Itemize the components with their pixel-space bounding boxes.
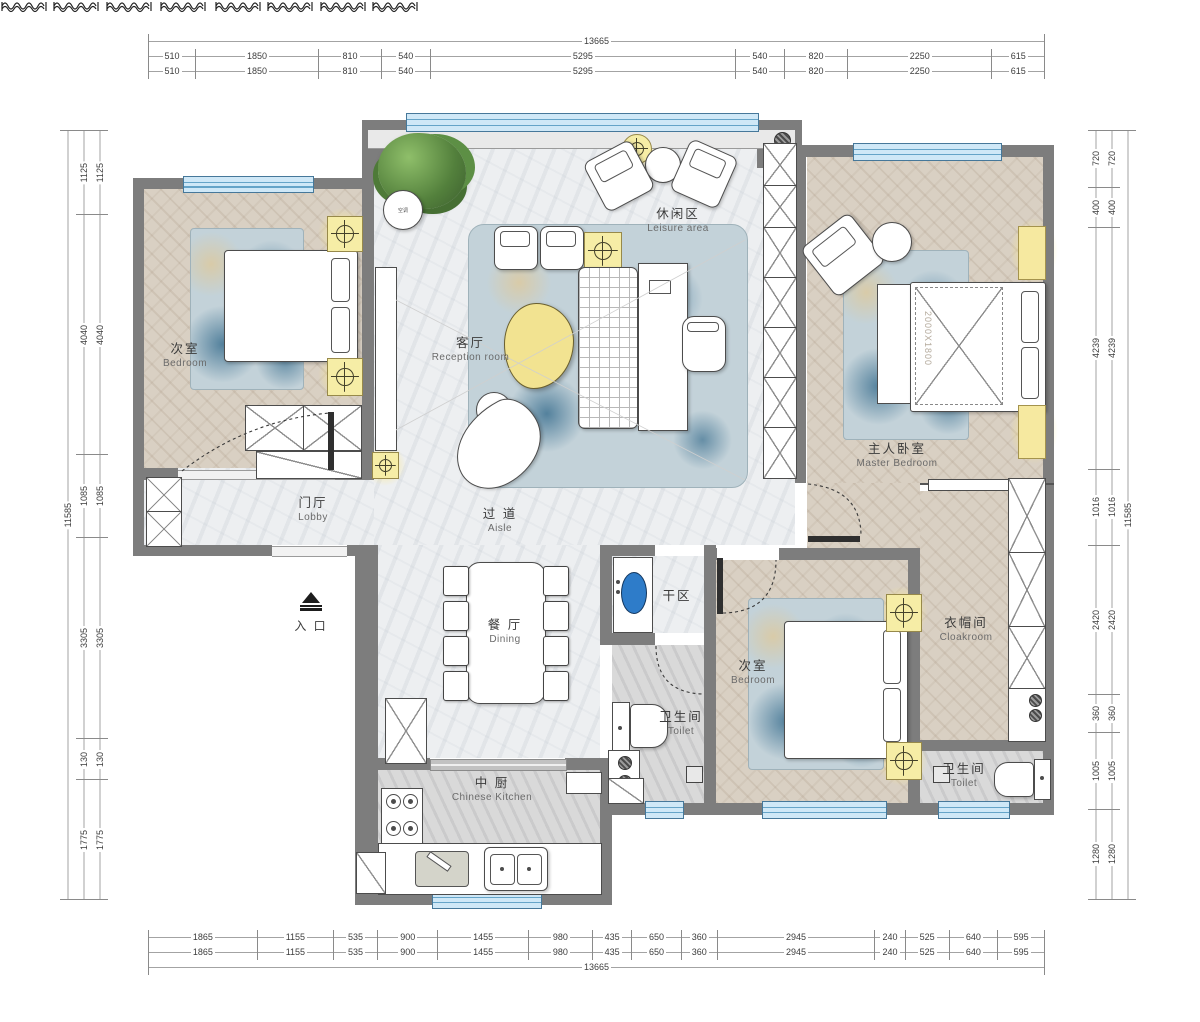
dim-seg: 240 xyxy=(874,945,905,960)
door-swing-overlay xyxy=(0,0,1200,1022)
dim-seg: 5295 xyxy=(430,64,735,79)
room-label-bedroom1: 次室 Bedroom xyxy=(140,338,230,369)
dim-seg: 510 xyxy=(148,64,195,79)
dim-seg: 1455 xyxy=(437,945,527,960)
dim-total-col: 11585 xyxy=(1120,130,1136,900)
dim-seg: 1280 xyxy=(1104,809,1120,900)
dim-seg: 640 xyxy=(949,930,998,945)
dim-seg: 1850 xyxy=(195,49,318,64)
dim-seg: 400 xyxy=(1088,187,1104,227)
dim-seg: 130 xyxy=(92,738,108,779)
dim-seg: 1155 xyxy=(257,930,333,945)
dim-seg: 615 xyxy=(991,49,1045,64)
dim-chain-right: 720 400 4239 1016 2420 360 1005 1280 720… xyxy=(1088,130,1136,900)
dim-chain-top: 13665 510 1850 810 540 5295 540 820 2250… xyxy=(148,34,1045,79)
dim-seg: 435 xyxy=(592,945,632,960)
dim-col: 1125 4040 1085 3305 130 1775 xyxy=(92,130,108,900)
dim-seg: 810 xyxy=(318,64,381,79)
dim-seg: 650 xyxy=(631,945,680,960)
dim-seg: 13665 xyxy=(148,960,1045,975)
dim-seg: 2945 xyxy=(717,930,874,945)
dim-seg: 4040 xyxy=(76,214,92,454)
dim-seg: 400 xyxy=(1104,187,1120,227)
room-label-aisle: 过 道 Aisle xyxy=(460,503,540,534)
dim-seg: 640 xyxy=(949,945,998,960)
dim-col: 720 400 4239 1016 2420 360 1005 1280 xyxy=(1088,130,1104,900)
dim-seg: 11585 xyxy=(60,130,76,900)
dim-seg: 810 xyxy=(318,49,381,64)
dim-seg: 595 xyxy=(997,945,1045,960)
dim-seg: 720 xyxy=(1104,130,1120,187)
room-label-toilet-mid: 卫生间 Toilet xyxy=(651,706,711,737)
room-label-kitchen: 中 厨 Chinese Kitchen xyxy=(422,772,562,803)
room-label-reception: 客厅 Reception room xyxy=(413,332,528,363)
dim-seg: 4239 xyxy=(1088,227,1104,468)
dim-row: 510 1850 810 540 5295 540 820 2250 615 xyxy=(148,49,1045,64)
dim-seg: 595 xyxy=(997,930,1045,945)
room-label-dry-area: 干区 xyxy=(652,585,702,604)
dim-seg: 980 xyxy=(528,930,592,945)
dim-seg: 1016 xyxy=(1088,469,1104,546)
dim-seg: 540 xyxy=(381,64,430,79)
dim-total-row: 13665 xyxy=(148,34,1045,49)
dim-seg: 525 xyxy=(905,945,949,960)
room-label-lobby: 门厅 Lobby xyxy=(273,492,353,523)
dim-seg: 900 xyxy=(377,930,437,945)
dim-total-col: 11585 xyxy=(60,130,76,900)
dim-seg: 130 xyxy=(76,738,92,779)
dim-seg: 1775 xyxy=(92,779,108,900)
room-label-toilet-br: 卫生间 Toilet xyxy=(934,758,994,789)
dim-seg: 435 xyxy=(592,930,632,945)
dim-seg: 820 xyxy=(784,64,847,79)
dim-seg: 4239 xyxy=(1104,227,1120,468)
room-label-entrance: 入 口 xyxy=(285,617,337,634)
dim-seg: 980 xyxy=(528,945,592,960)
room-label-cloakroom: 衣帽间 Cloakroom xyxy=(916,612,1016,643)
dim-seg: 2420 xyxy=(1088,545,1104,694)
dim-seg: 360 xyxy=(681,945,717,960)
dim-row: 1865 1155 535 900 1455 980 435 650 360 2… xyxy=(148,930,1045,945)
dim-seg: 240 xyxy=(874,930,905,945)
dim-seg: 525 xyxy=(905,930,949,945)
dim-seg: 1085 xyxy=(92,454,108,537)
room-label-leisure: 休闲区 Leisure area xyxy=(618,203,738,234)
dim-seg: 2945 xyxy=(717,945,874,960)
dim-seg: 540 xyxy=(735,49,784,64)
dim-seg: 13665 xyxy=(148,34,1045,49)
dim-seg: 4040 xyxy=(92,214,108,454)
dim-seg: 3305 xyxy=(92,537,108,738)
dim-seg: 820 xyxy=(784,49,847,64)
dim-seg: 1865 xyxy=(148,930,257,945)
dim-row: 1865 1155 535 900 1455 980 435 650 360 2… xyxy=(148,945,1045,960)
dim-col: 1125 4040 1085 3305 130 1775 xyxy=(76,130,92,900)
dim-seg: 1005 xyxy=(1088,732,1104,808)
dim-total-row: 13665 xyxy=(148,960,1045,975)
dim-chain-bottom: 1865 1155 535 900 1455 980 435 650 360 2… xyxy=(148,930,1045,975)
dim-seg: 900 xyxy=(377,945,437,960)
room-label-dining: 餐 厅 Dining xyxy=(465,614,545,645)
dim-seg: 360 xyxy=(1104,694,1120,732)
dim-seg: 1280 xyxy=(1088,809,1104,900)
room-label-bedroom2: 次室 Bedroom xyxy=(713,655,793,686)
dim-seg: 360 xyxy=(681,930,717,945)
room-label-master: 主人卧室 Master Bedroom xyxy=(837,438,957,469)
dim-seg: 1455 xyxy=(437,930,527,945)
dim-seg: 3305 xyxy=(76,537,92,738)
dim-seg: 535 xyxy=(333,945,377,960)
dim-seg: 1125 xyxy=(76,130,92,214)
floor-plan-page: 空调 xyxy=(0,0,1200,1022)
dim-seg: 510 xyxy=(148,49,195,64)
dim-seg: 1005 xyxy=(1104,732,1120,808)
dim-seg: 615 xyxy=(991,64,1045,79)
dim-chain-left: 11585 1125 4040 1085 3305 130 1775 1125 … xyxy=(60,130,108,900)
dim-seg: 1016 xyxy=(1104,469,1120,546)
dim-seg: 720 xyxy=(1088,130,1104,187)
dim-seg: 1775 xyxy=(76,779,92,900)
dim-seg: 2250 xyxy=(847,49,991,64)
dim-seg: 1125 xyxy=(92,130,108,214)
dim-seg: 1155 xyxy=(257,945,333,960)
dim-seg: 1865 xyxy=(148,945,257,960)
dim-row: 510 1850 810 540 5295 540 820 2250 615 xyxy=(148,64,1045,79)
dim-seg: 1085 xyxy=(76,454,92,537)
dim-seg: 540 xyxy=(735,64,784,79)
dim-seg: 11585 xyxy=(1120,130,1136,900)
dim-seg: 535 xyxy=(333,930,377,945)
dim-seg: 5295 xyxy=(430,49,735,64)
dim-seg: 650 xyxy=(631,930,680,945)
dim-seg: 2420 xyxy=(1104,545,1120,694)
dim-seg: 360 xyxy=(1088,694,1104,732)
dim-seg: 2250 xyxy=(847,64,991,79)
dim-col: 720 400 4239 1016 2420 360 1005 1280 xyxy=(1104,130,1120,900)
dim-seg: 1850 xyxy=(195,64,318,79)
dim-seg: 540 xyxy=(381,49,430,64)
